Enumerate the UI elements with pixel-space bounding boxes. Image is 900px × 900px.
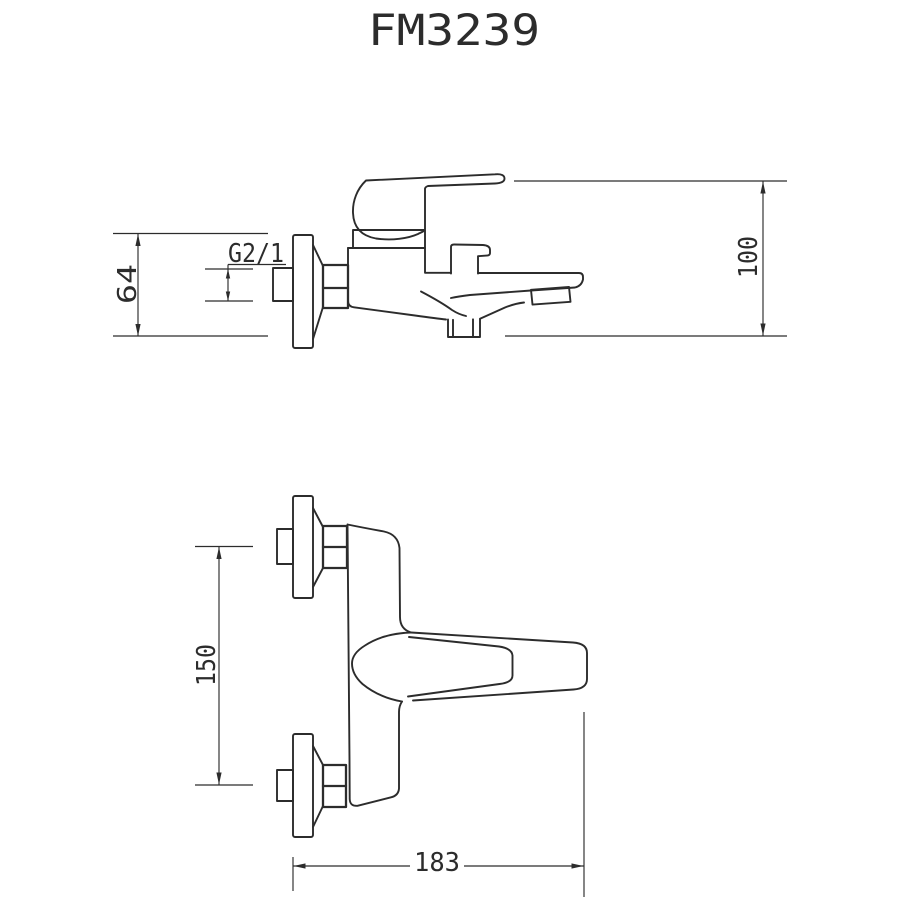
drawing-sheet: FM3239 (0, 0, 900, 900)
side-flange-cone (313, 245, 323, 339)
front-upper-fitting (277, 529, 293, 564)
side-inlet-fitting (273, 268, 293, 301)
dim-64-label: 64 (113, 264, 143, 304)
technical-drawing: FM3239 (0, 0, 900, 900)
side-wall-flange (293, 235, 313, 348)
dim-183-label: 183 (414, 848, 460, 878)
front-lower-cone (313, 746, 323, 827)
side-view (273, 174, 583, 348)
side-body-crease (421, 292, 466, 317)
side-shower-outlet (448, 303, 524, 338)
dim-100: 100 (505, 181, 787, 336)
side-hex-nut (323, 265, 348, 308)
dim-183: 183 (293, 712, 584, 897)
front-body-outline (348, 525, 412, 806)
front-lower-flange (293, 734, 313, 837)
front-lower-fitting (277, 770, 293, 801)
side-body-outline (348, 248, 583, 320)
drawing-title: FM3239 (368, 6, 540, 56)
front-handle-blade (408, 637, 513, 697)
front-handle-outline (411, 633, 587, 701)
dim-150: 150 (192, 547, 253, 786)
side-diverter-knob (451, 245, 490, 274)
front-upper-flange (293, 496, 313, 598)
front-upper-cone (313, 508, 323, 587)
dim-150-label: 150 (192, 644, 222, 686)
dim-100-label: 100 (734, 236, 764, 278)
front-handle-dome (352, 633, 411, 702)
front-view (277, 496, 587, 837)
dimensions: 64 G2/1 100 150 183 (113, 181, 787, 897)
